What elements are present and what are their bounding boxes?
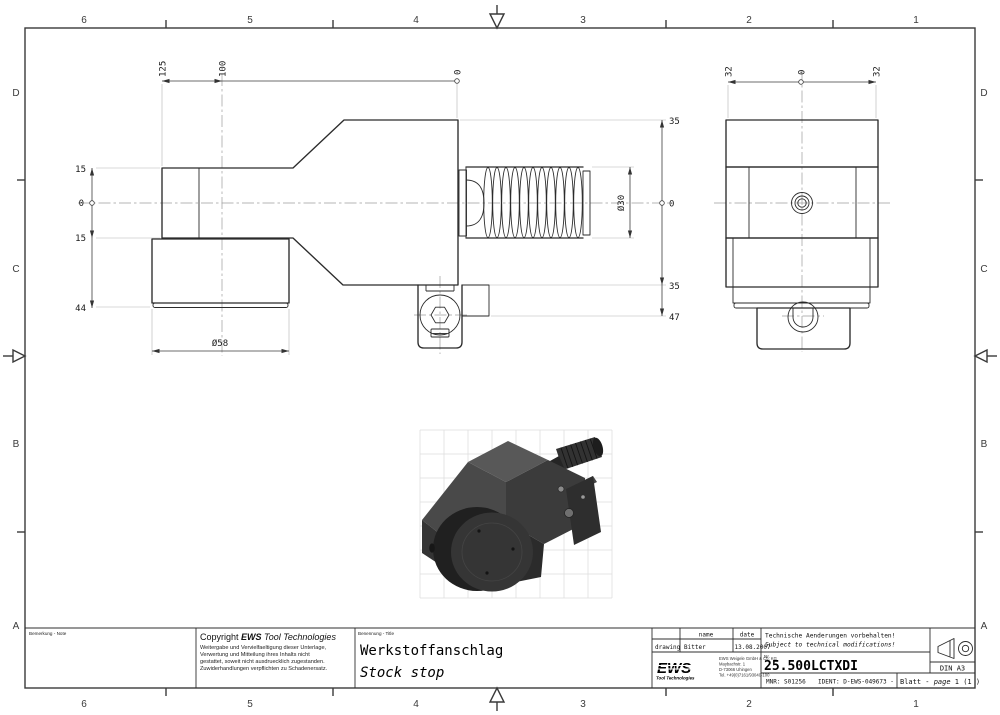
grid-col-label: 6 <box>81 15 87 26</box>
paper-format: DIN A3 <box>940 665 965 673</box>
grid-col-label: 1 <box>913 15 919 26</box>
grid-col-label: 2 <box>746 15 752 26</box>
part-title-de: Werkstoffanschlag <box>360 643 503 659</box>
grid-col-label: 5 <box>247 15 253 26</box>
dim-44: 44 <box>75 304 86 314</box>
approval-table: name date drawing Bitter 13.08.2007 <box>655 632 771 652</box>
side-view: 32 0 32 <box>714 66 890 352</box>
copyright-line: Verwertung und Mitteilung ihres Inhalts … <box>200 652 310 658</box>
front-view: 125 100 0 15 0 15 44 35 0 35 47 Ø30 Ø58 <box>75 61 680 356</box>
grid-col-label: 3 <box>580 15 586 26</box>
dim-35-top: 35 <box>669 117 680 127</box>
center-marks <box>3 5 997 711</box>
grid-col-label: 4 <box>413 699 419 710</box>
number-box: Technische Aenderungen vorbehalten! Subj… <box>764 633 895 686</box>
mnr-value: MNR: S01256 <box>766 679 806 686</box>
iso-view <box>420 430 612 598</box>
iso-part <box>422 437 605 592</box>
name-header: name <box>699 632 714 639</box>
dim-0-right: 0 <box>669 200 674 210</box>
part-number: 25.500LCTXDI <box>764 659 858 674</box>
copyright-box: Copyright EWS Tool Technologies Weiterga… <box>200 632 336 672</box>
grid-row-label: A <box>13 621 20 632</box>
dimension-lines <box>92 81 662 351</box>
dim-dia30: Ø30 <box>616 195 627 211</box>
grid-row-label: D <box>12 88 19 99</box>
date-header: date <box>740 632 755 639</box>
company-address-line: Tel. +49(0)7161/93040-100 <box>719 673 770 678</box>
clamp-bracket <box>418 285 489 348</box>
extension-lines <box>96 84 666 355</box>
dim-0-left: 0 <box>79 199 84 209</box>
dim-47: 47 <box>669 313 680 323</box>
copyright-title: Copyright EWS Tool Technologies <box>200 632 336 642</box>
notice-de: Technische Aenderungen vorbehalten! <box>765 633 895 640</box>
dim-15-upper: 15 <box>75 165 86 175</box>
company-address-line: D-73066 Uhingen <box>719 667 752 672</box>
part-title-en: Stock stop <box>360 665 444 681</box>
grid-col-label: 1 <box>913 699 919 710</box>
row-label-drawing: drawing <box>655 644 681 651</box>
dim-35-bottom: 35 <box>669 282 680 292</box>
title-label: Benennung - Title <box>358 631 394 636</box>
dim-15-lower: 15 <box>75 234 86 244</box>
ident-value: IDENT: D-EWS-049673 - <box>818 679 894 686</box>
sheet-frame: 6 5 4 3 2 1 6 5 4 3 2 1 D C B A D C B A <box>3 5 997 711</box>
front-view-geometry <box>152 120 590 348</box>
dim-32-left: 32 <box>725 66 735 77</box>
copyright-line: Zuwiderhandlungen verpflichten zu Schade… <box>200 666 328 672</box>
title-box: Benennung - Title Werkstoffanschlag Stoc… <box>358 631 503 681</box>
copyright-line: gestattet, soweit nicht ausdruecklich zu… <box>200 659 325 665</box>
grid-col-label: 2 <box>746 699 752 710</box>
grid-col-label: 3 <box>580 699 586 710</box>
company-address-line: Maybachstr. 1 <box>719 662 746 667</box>
grid-col-label: 4 <box>413 15 419 26</box>
dim-32-right: 32 <box>873 66 883 77</box>
company-logo-box: EWS Tool Technologies EWS Weigele GmbH &… <box>656 656 777 681</box>
title-block: Bemerkung - Note Copyright EWS Tool Tech… <box>25 628 980 688</box>
notice-en: Subject to technical modifications! <box>765 641 895 649</box>
copyright-line: Weitergabe und Vervielfaeltigung dieser … <box>200 645 327 651</box>
projection-box: DIN A3 <box>938 639 973 673</box>
grid-row-label: A <box>981 621 988 632</box>
sheet-number: Blatt - page 1 (1 ) <box>900 678 980 686</box>
remark-label: Bemerkung - Note <box>29 631 67 636</box>
dim-dia58: Ø58 <box>212 338 228 349</box>
thread-coils <box>484 168 583 238</box>
grid-col-label: 5 <box>247 699 253 710</box>
grid-row-label: C <box>980 264 987 275</box>
dim-0-side: 0 <box>798 70 808 75</box>
grid-row-label: B <box>981 439 988 450</box>
grid-col-label: 6 <box>81 699 87 710</box>
dim-100: 100 <box>219 61 229 77</box>
drawn-by-name: Bitter <box>684 644 706 651</box>
dim-0-top: 0 <box>454 70 464 75</box>
centerlines <box>714 70 890 352</box>
grid-row-label: D <box>980 88 987 99</box>
dim-125: 125 <box>159 61 169 77</box>
ews-logo-sub: Tool Technologies <box>656 676 695 681</box>
grid-row-label: B <box>13 439 20 450</box>
grid-row-label: C <box>12 264 19 275</box>
technical-drawing-sheet: 6 5 4 3 2 1 6 5 4 3 2 1 D C B A D C B A <box>0 0 1000 715</box>
first-angle-projection-icon <box>938 639 973 659</box>
